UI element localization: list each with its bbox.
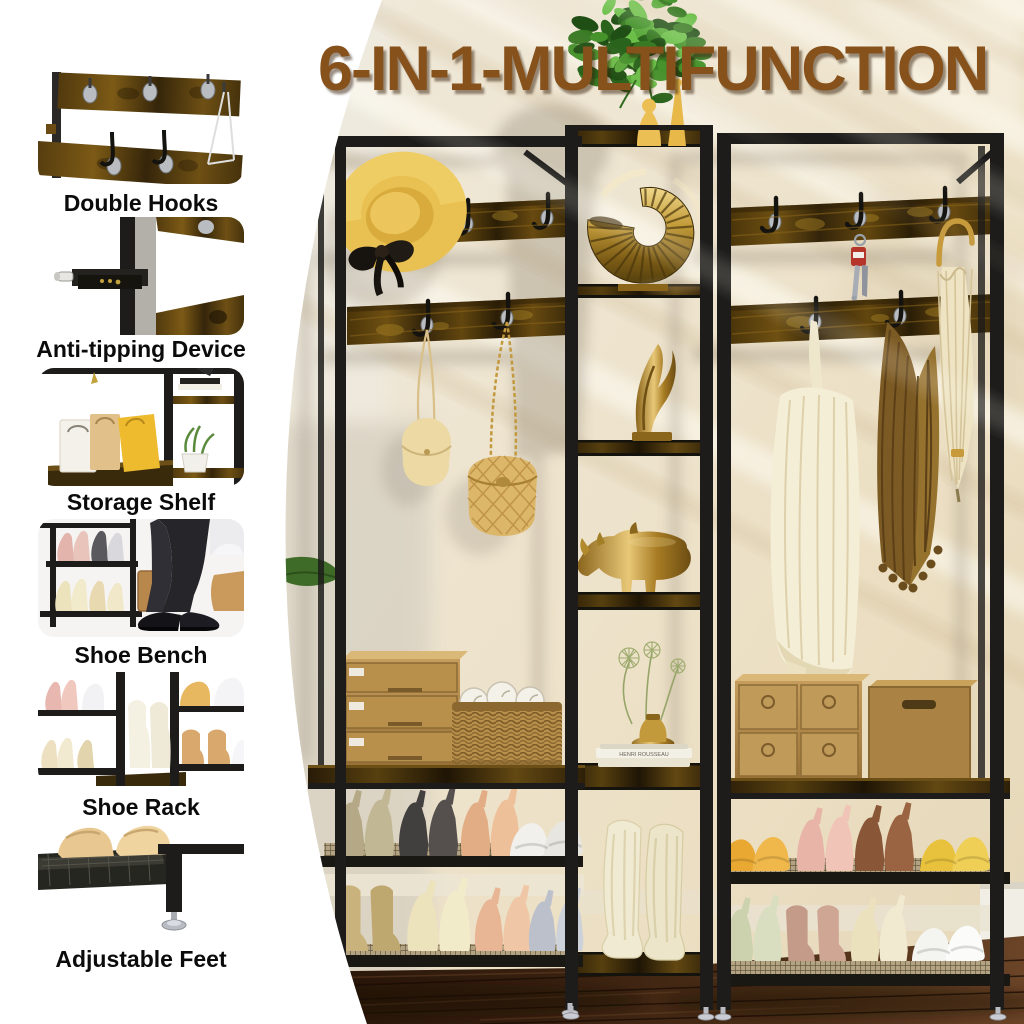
svg-text:HENRI ROUSSEAU: HENRI ROUSSEAU bbox=[619, 752, 669, 758]
